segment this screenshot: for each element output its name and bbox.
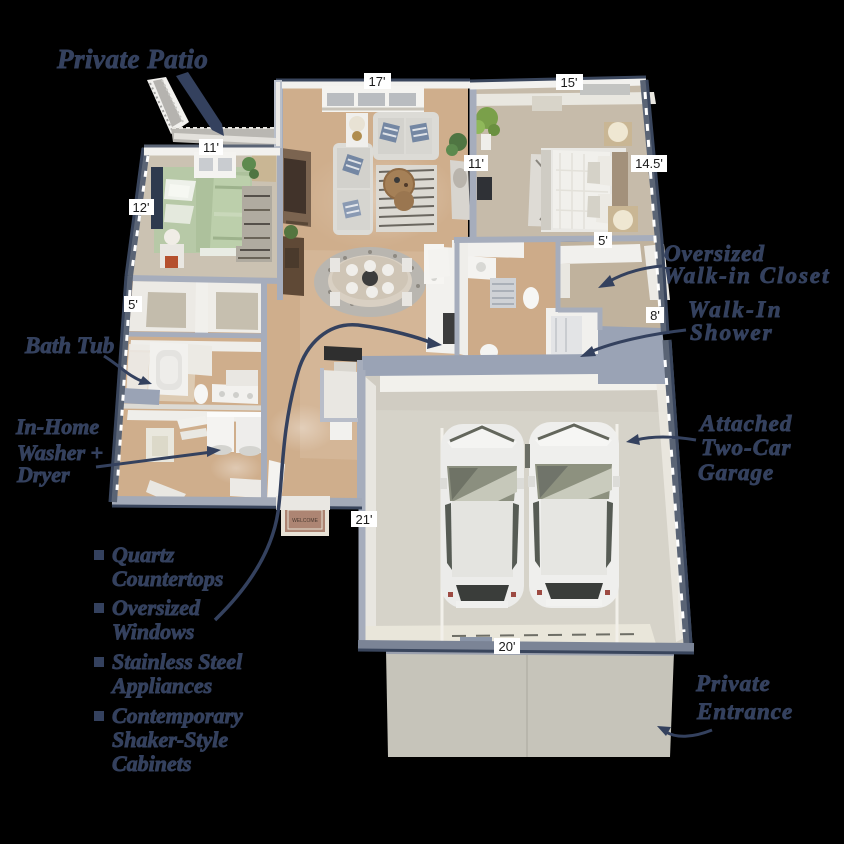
svg-text:Walk-In: Walk-In: [688, 297, 783, 322]
svg-text:Stainless Steel: Stainless Steel: [112, 649, 243, 674]
svg-text:WELCOME: WELCOME: [292, 518, 319, 524]
svg-text:Oversized: Oversized: [112, 595, 201, 620]
svg-text:Shower: Shower: [690, 320, 774, 345]
svg-text:Dryer: Dryer: [16, 462, 70, 487]
svg-text:Windows: Windows: [112, 619, 194, 644]
svg-text:11': 11': [203, 140, 219, 155]
svg-text:Contemporary: Contemporary: [112, 703, 243, 728]
svg-text:Attached: Attached: [698, 411, 792, 436]
svg-text:12': 12': [133, 200, 150, 215]
svg-text:11': 11': [468, 156, 484, 171]
svg-text:21': 21': [356, 512, 373, 527]
svg-text:5': 5': [598, 233, 608, 248]
svg-text:20': 20': [499, 639, 516, 654]
svg-text:8': 8': [650, 308, 660, 323]
svg-text:Entrance: Entrance: [696, 699, 793, 724]
svg-text:14.5': 14.5': [635, 156, 663, 171]
svg-text:Countertops: Countertops: [112, 566, 223, 591]
svg-text:Bath Tub: Bath Tub: [24, 333, 114, 358]
svg-text:Cabinets: Cabinets: [112, 751, 191, 776]
svg-text:Garage: Garage: [698, 460, 774, 485]
svg-text:15': 15': [561, 75, 578, 90]
svg-text:Private: Private: [695, 671, 771, 696]
svg-text:Walk-in Closet: Walk-in Closet: [663, 263, 831, 288]
svg-text:In-Home: In-Home: [15, 414, 99, 439]
svg-text:Two-Car: Two-Car: [701, 435, 792, 460]
svg-text:Private Patio: Private Patio: [56, 44, 208, 74]
svg-text:17': 17': [369, 74, 386, 89]
svg-text:Quartz: Quartz: [112, 542, 175, 567]
svg-text:5': 5': [128, 297, 138, 312]
svg-text:Appliances: Appliances: [110, 673, 212, 698]
svg-text:Shaker-Style: Shaker-Style: [112, 727, 228, 752]
